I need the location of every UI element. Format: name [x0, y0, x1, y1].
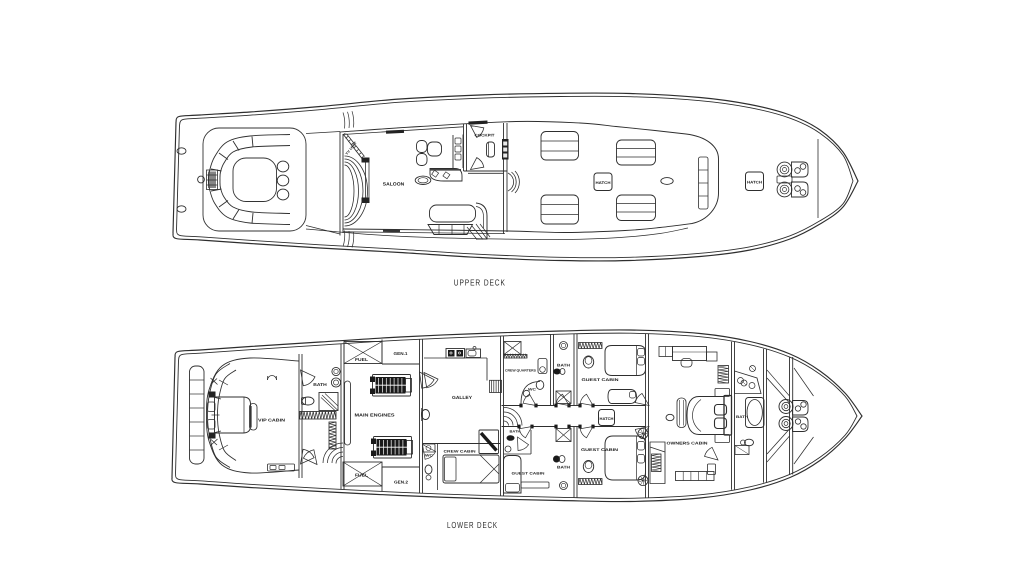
svg-text:CREW CABIN: CREW CABIN	[444, 450, 477, 454]
svg-text:COCKPIT: COCKPIT	[475, 134, 496, 138]
svg-text:GEN.2: GEN.2	[394, 480, 409, 485]
svg-text:BATH: BATH	[557, 363, 570, 368]
svg-text:HATCH: HATCH	[596, 181, 611, 185]
svg-text:GALLEY: GALLEY	[452, 395, 472, 400]
svg-text:HATCH: HATCH	[747, 181, 762, 185]
svg-text:BATH: BATH	[510, 430, 522, 434]
svg-text:GUEST CABIN: GUEST CABIN	[581, 447, 618, 452]
svg-text:HATCH: HATCH	[600, 417, 614, 421]
svg-text:UPPER DECK: UPPER DECK	[454, 277, 506, 287]
svg-text:GUEST CABIN: GUEST CABIN	[512, 472, 546, 476]
svg-text:SALOON: SALOON	[383, 182, 405, 187]
svg-text:WC: WC	[528, 388, 537, 392]
svg-text:GUEST CABIN: GUEST CABIN	[582, 377, 619, 382]
svg-text:FUEL: FUEL	[355, 357, 369, 362]
svg-text:BATH: BATH	[736, 415, 748, 419]
svg-text:VIP CABIN: VIP CABIN	[258, 418, 285, 423]
svg-text:FUEL: FUEL	[355, 473, 369, 478]
svg-text:BATH: BATH	[557, 465, 570, 470]
svg-text:OWNERS CABIN: OWNERS CABIN	[667, 441, 708, 446]
svg-text:BATH: BATH	[313, 382, 327, 387]
svg-text:GEN.1: GEN.1	[394, 351, 409, 356]
svg-text:LOWER DECK: LOWER DECK	[447, 520, 498, 530]
svg-text:MAIN ENGINES: MAIN ENGINES	[355, 413, 395, 418]
svg-text:CREW QUARTERS: CREW QUARTERS	[505, 369, 537, 373]
